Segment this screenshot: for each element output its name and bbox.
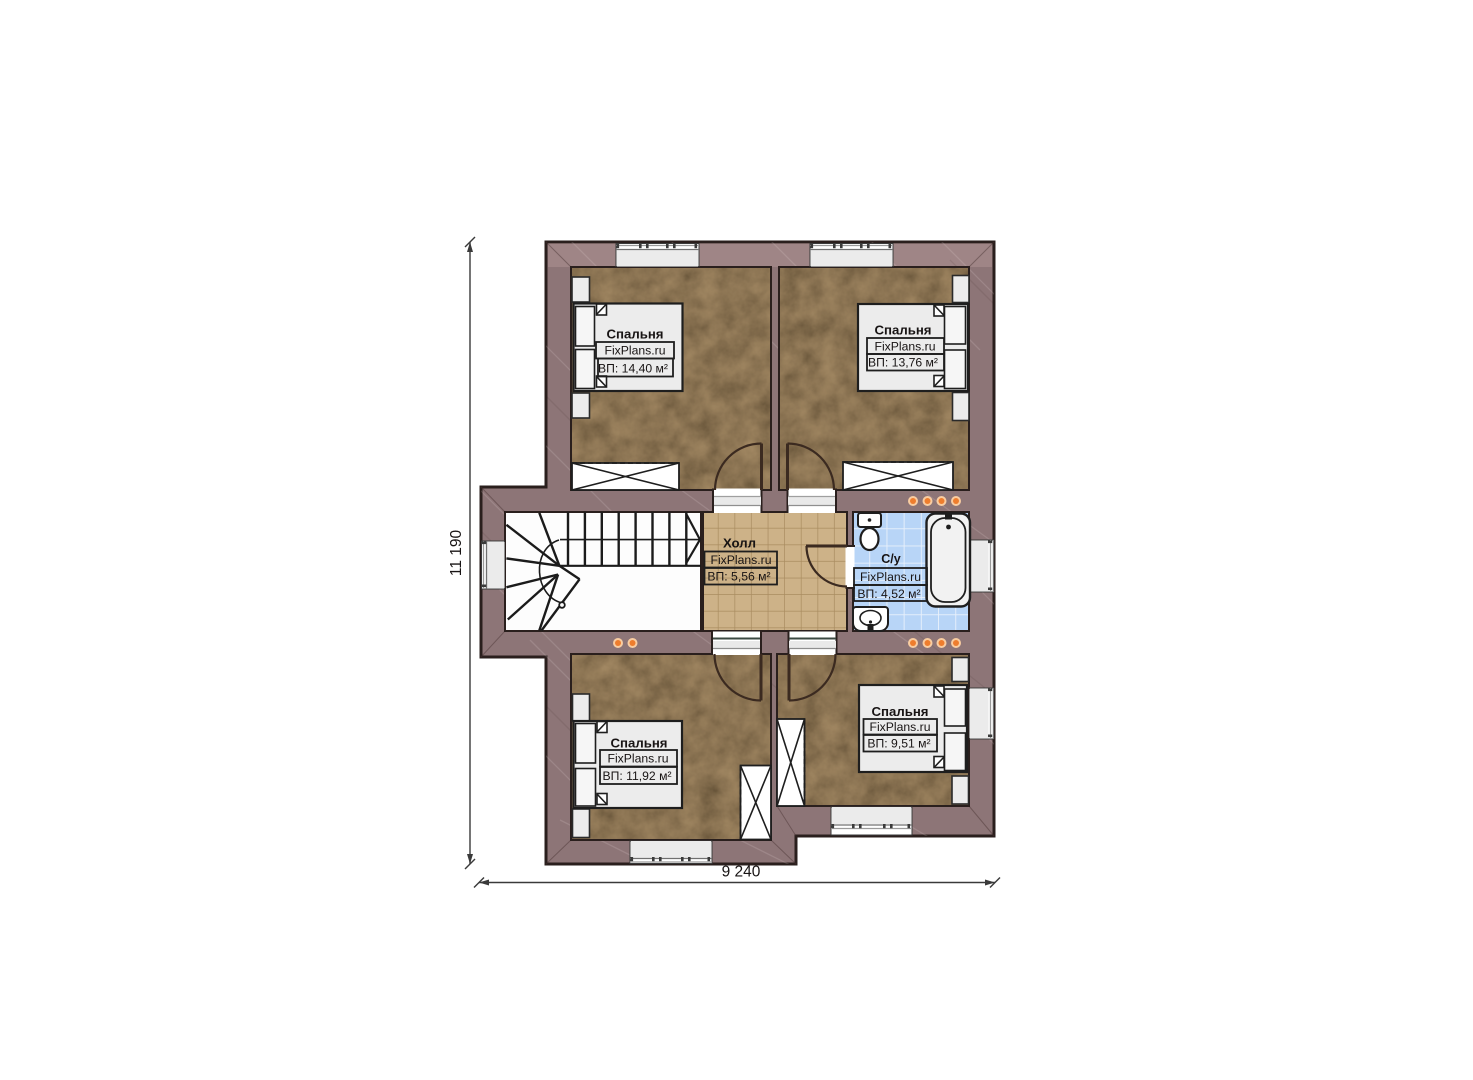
svg-text:9 240: 9 240 [722,864,761,881]
svg-text:ВП: 14,40 м²: ВП: 14,40 м² [598,362,668,376]
svg-text:FixPlans.ru: FixPlans.ru [870,720,931,734]
svg-text:Спальня: Спальня [607,327,664,342]
svg-text:ВП: 13,76 м²: ВП: 13,76 м² [868,356,938,370]
svg-text:С/у: С/у [881,552,901,566]
svg-text:FixPlans.ru: FixPlans.ru [860,570,921,584]
svg-text:ВП: 5,56 м²: ВП: 5,56 м² [707,570,770,584]
svg-text:Холл: Холл [723,536,756,551]
svg-text:ВП: 9,51 м²: ВП: 9,51 м² [867,737,930,751]
svg-text:Спальня: Спальня [611,736,668,751]
svg-text:Спальня: Спальня [872,704,929,719]
svg-text:FixPlans.ru: FixPlans.ru [711,553,772,567]
svg-text:FixPlans.ru: FixPlans.ru [605,344,666,358]
svg-text:ВП: 4,52 м²: ВП: 4,52 м² [857,587,920,601]
svg-text:FixPlans.ru: FixPlans.ru [608,752,669,766]
svg-text:11 190: 11 190 [448,529,465,576]
svg-text:ВП: 11,92 м²: ВП: 11,92 м² [602,769,671,783]
svg-text:FixPlans.ru: FixPlans.ru [875,340,936,354]
svg-text:Спальня: Спальня [875,323,932,338]
